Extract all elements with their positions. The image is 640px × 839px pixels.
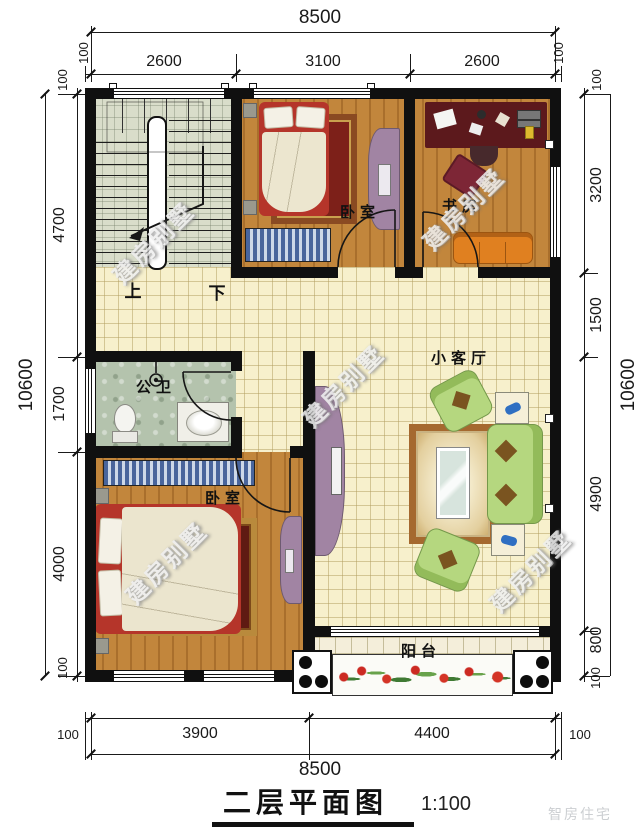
floor-plan-sheet: 8500 100 2600 3100 2600 100 10600 100 47… [0,0,640,839]
dim-bottom-100-right: 100 [564,724,596,744]
dim-left-1700: 1700 [51,379,69,429]
vanity-sink [177,402,229,442]
dim-right-100-top: 100 [587,55,605,105]
window-bedroom-top [253,88,371,99]
dim-top-2600-right: 2600 [436,52,528,72]
dim-top-100-right: 100 [545,42,571,64]
bedroom-bottom-cabinet [103,460,255,486]
label-bathroom: 公卫 [129,376,183,396]
dim-bottom-3900: 3900 [155,724,245,744]
bedroom-top-bed [259,102,329,216]
duvet [262,132,326,212]
window-bedroom-bottom-2 [203,670,275,682]
side-table-bottom [491,524,525,556]
toilet [112,404,138,444]
dim-right-3200: 3200 [588,160,606,210]
label-bedroom-top: 卧室 [331,200,389,222]
dim-left-4700: 4700 [51,200,69,250]
balcony-column-right [513,650,553,694]
window-bedroom-bottom-1 [113,670,185,682]
dim-top-100-left: 100 [70,42,96,64]
dim-bottom-100-left: 100 [52,724,84,744]
coffee-table [437,448,469,518]
dim-left-4000: 4000 [51,539,69,589]
tv [331,447,342,495]
dim-right-overall: 10600 [619,355,639,415]
bedroom-bottom-wardrobe [280,516,302,604]
label-balcony: 阳台 [391,640,451,660]
dim-bottom-4400: 4400 [387,724,477,744]
brand-watermark: 智房住宅 [548,803,638,825]
dim-line [91,32,555,33]
dim-line [85,74,561,75]
dim-top-3100: 3100 [277,52,369,72]
dim-left-100-bottom: 100 [53,643,71,693]
living-rug [409,424,497,544]
living-sofa [487,424,543,524]
wall-study-left [404,88,415,278]
label-stairs-down: 下 [205,280,229,302]
label-living: 小客厅 [418,346,504,368]
window-study [550,166,561,258]
side-table-top [495,392,529,424]
window-bathroom [85,368,96,434]
window-stair [113,88,225,99]
wall-hall [231,267,338,278]
wall-stair-right [231,88,242,278]
dim-right-100-bottom: 100 [586,653,604,703]
wall-bedroom2-top [85,446,235,458]
dim-left-overall: 10600 [17,355,37,415]
drawing-scale: 1:100 [414,792,478,816]
bedroom-top-cabinet [245,228,331,262]
study-desk [425,102,547,148]
balcony-column-left [292,650,332,694]
dim-left-100-top: 100 [53,55,71,105]
dim-right-1500: 1500 [588,290,606,340]
drawing-title: 二层平面图 [198,784,413,818]
title-underline [212,822,414,827]
dim-top-2600-left: 2600 [118,52,210,72]
balcony-slider [330,626,540,637]
wall-bathroom-top [85,351,242,362]
dim-bottom-overall: 8500 [275,760,365,780]
study-sofa [453,232,533,264]
dim-top-overall: 8500 [270,8,370,28]
